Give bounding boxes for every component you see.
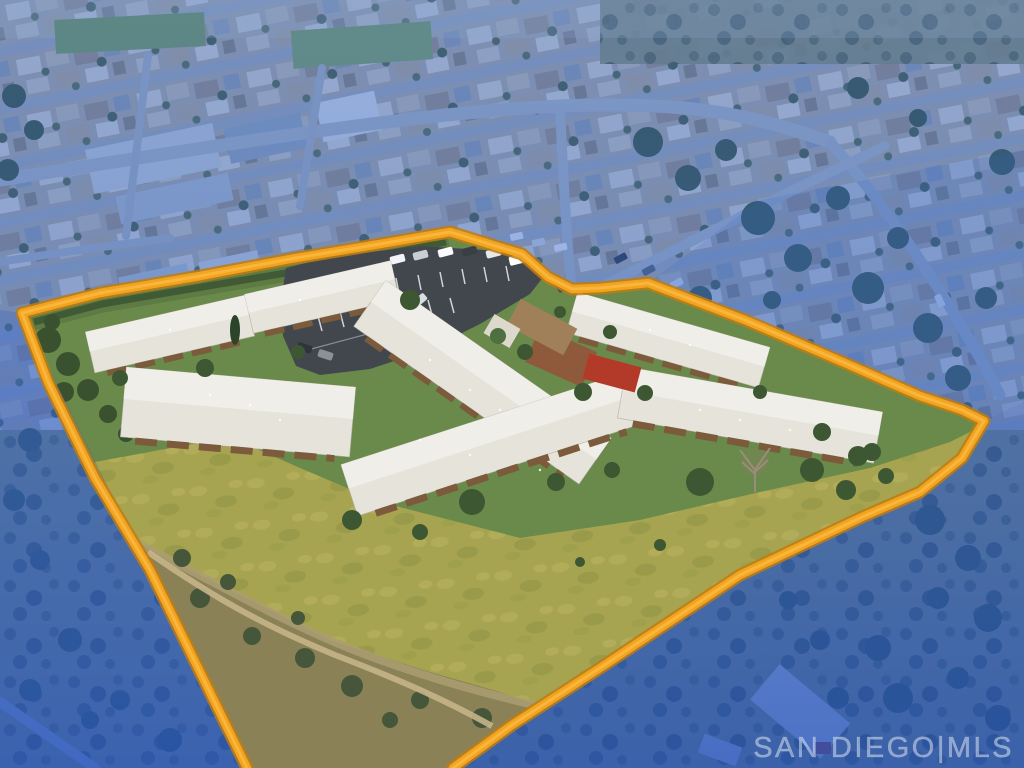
aerial-photo: SAN DIEGO|MLS (0, 0, 1024, 768)
cypress-tree (230, 315, 240, 345)
aerial-photo-canvas: SAN DIEGO|MLS (0, 0, 1024, 768)
palm-tree (490, 328, 506, 344)
mls-watermark: SAN DIEGO|MLS (753, 732, 1014, 764)
